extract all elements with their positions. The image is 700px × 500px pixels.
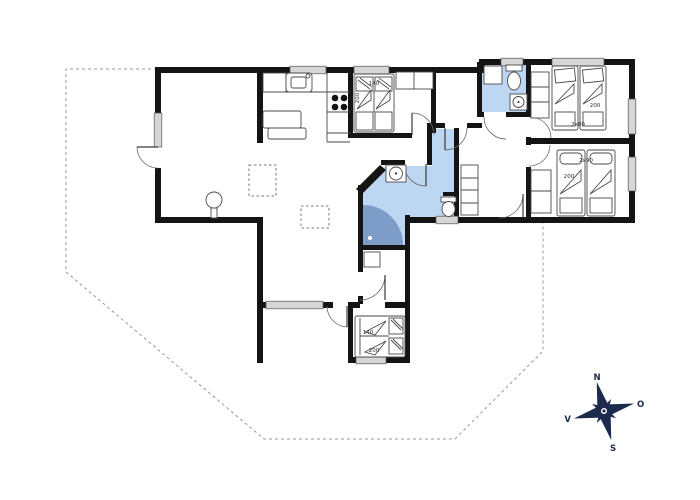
kitchen-cabinet — [263, 73, 286, 92]
bed-size-label: 2x90 — [579, 158, 593, 164]
floorplan-drawing: 140 200 200 2x80 2x90 200 140 200 — [0, 0, 700, 500]
compass-north-label: N — [593, 373, 600, 383]
wardrobe — [396, 72, 433, 89]
window — [628, 157, 636, 191]
toilet-icon — [442, 202, 455, 217]
window — [266, 301, 323, 309]
bed-size-label: 2x80 — [571, 122, 585, 128]
bed-width-label: 140 — [369, 81, 380, 87]
anteroom-cabinet — [364, 252, 380, 267]
toilet-icon — [508, 72, 521, 90]
bed-length-label: 200 — [590, 103, 601, 109]
window — [552, 58, 604, 66]
wc-cabinet — [484, 66, 502, 84]
stove-icon — [332, 95, 348, 111]
bed-length-label: 200 — [355, 92, 361, 103]
compass-west-label: V — [564, 415, 571, 425]
bed-double-bottom — [355, 316, 405, 357]
sofa-back — [268, 128, 306, 139]
shower-drain-icon — [368, 236, 372, 240]
pillow — [554, 68, 575, 83]
compass-rose: N O S V — [564, 373, 644, 454]
skylight-icon — [249, 165, 276, 196]
compass-south-label: S — [610, 444, 616, 454]
fireplace-icon — [206, 192, 222, 208]
wardrobe — [531, 72, 549, 118]
beds-2x80 — [552, 66, 606, 130]
window — [436, 216, 458, 224]
floorplan-page: 140 200 200 2x80 2x90 200 140 200 — [0, 0, 700, 500]
bed-length-label: 200 — [564, 174, 575, 180]
toilet-tank — [506, 65, 522, 71]
faucet-icon — [306, 74, 310, 78]
window — [154, 113, 162, 147]
window — [628, 99, 636, 134]
wardrobe — [531, 170, 551, 213]
bed-width-label: 140 — [363, 330, 374, 336]
compass-east-label: O — [637, 400, 644, 410]
skylight-icon — [301, 206, 329, 228]
bed-length-label: 200 — [369, 348, 380, 354]
window — [354, 66, 389, 74]
pillow — [590, 153, 612, 164]
sofa — [263, 111, 301, 128]
pillow — [582, 68, 603, 83]
